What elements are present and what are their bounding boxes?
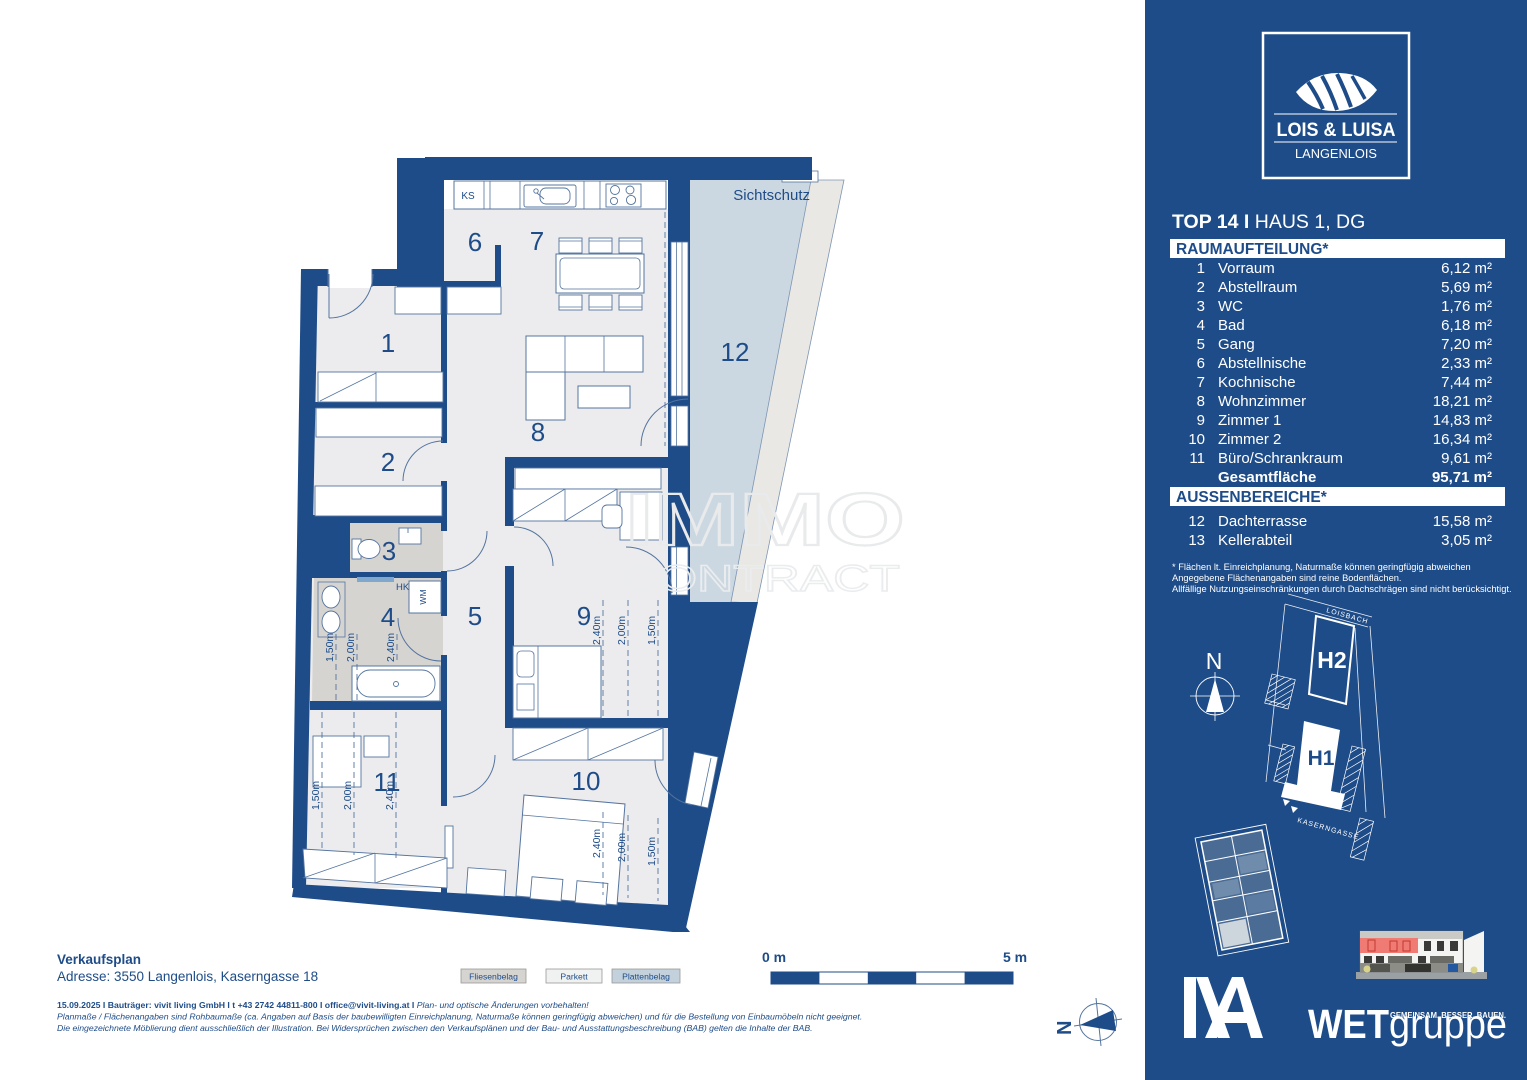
svg-text:KS: KS [461, 191, 475, 202]
svg-text:6,12 m²: 6,12 m² [1441, 260, 1492, 277]
svg-text:1: 1 [381, 328, 395, 358]
svg-text:Wohnzimmer: Wohnzimmer [1218, 393, 1306, 410]
svg-text:15.09.2025 I Bauträger: vivit: 15.09.2025 I Bauträger: vivit living Gmb… [57, 1000, 589, 1010]
svg-text:14,83 m²: 14,83 m² [1433, 412, 1492, 429]
svg-text:1,50m: 1,50m [310, 781, 322, 810]
svg-text:10: 10 [572, 766, 601, 796]
svg-text:2,00m: 2,00m [616, 833, 628, 862]
svg-text:gruppe: gruppe [1389, 1001, 1507, 1047]
svg-text:5,69 m²: 5,69 m² [1441, 279, 1492, 296]
svg-text:9,61 m²: 9,61 m² [1441, 450, 1492, 467]
svg-text:LANGENLOIS: LANGENLOIS [1295, 146, 1377, 161]
svg-text:Zimmer 2: Zimmer 2 [1218, 431, 1281, 448]
svg-text:12: 12 [721, 337, 750, 367]
svg-text:10: 10 [1188, 431, 1205, 448]
svg-text:Gang: Gang [1218, 336, 1255, 353]
svg-text:AUSSENBEREICHE*: AUSSENBEREICHE* [1176, 489, 1328, 506]
svg-text:4: 4 [381, 602, 395, 632]
svg-text:95,71 m²: 95,71 m² [1432, 469, 1492, 486]
svg-text:WC: WC [1218, 298, 1243, 315]
svg-text:N: N [1054, 1021, 1076, 1035]
svg-text:Angegebene Flächenangaben sind: Angegebene Flächenangaben sind reine Bod… [1172, 573, 1402, 583]
svg-text:* Flächen lt. Einreichplanung,: * Flächen lt. Einreichplanung, Naturmaße… [1172, 562, 1471, 572]
svg-text:13: 13 [1188, 532, 1205, 549]
svg-text:2: 2 [1197, 279, 1205, 296]
svg-text:3: 3 [1197, 298, 1205, 315]
svg-text:Vorraum: Vorraum [1218, 260, 1275, 277]
svg-text:11: 11 [1189, 450, 1205, 467]
svg-text:1,50m: 1,50m [646, 616, 658, 645]
svg-text:7,20 m²: 7,20 m² [1441, 336, 1492, 353]
svg-text:5: 5 [1197, 336, 1205, 353]
svg-text:5: 5 [468, 601, 482, 631]
svg-text:5 m: 5 m [1003, 949, 1027, 965]
svg-text:9: 9 [577, 601, 591, 631]
svg-text:Abstellraum: Abstellraum [1218, 279, 1297, 296]
svg-text:2,33 m²: 2,33 m² [1441, 355, 1492, 372]
svg-text:Allfällige Nutzungseinschränku: Allfällige Nutzungseinschränkungen durch… [1172, 584, 1512, 594]
svg-text:GEMEINSAM. BESSER. BAUEN.: GEMEINSAM. BESSER. BAUEN. [1390, 1010, 1506, 1020]
svg-text:IMMO: IMMO [625, 478, 905, 561]
svg-text:Bad: Bad [1218, 317, 1245, 334]
svg-text:WET: WET [1308, 1001, 1389, 1047]
svg-text:Zimmer 1: Zimmer 1 [1218, 412, 1281, 429]
svg-text:CONTRACT: CONTRACT [622, 558, 900, 599]
svg-text:Die eingezeichnete Möblierung: Die eingezeichnete Möblierung dient auss… [57, 1023, 813, 1033]
svg-text:15,58 m²: 15,58 m² [1433, 513, 1492, 530]
svg-text:RAUMAUFTEILUNG*: RAUMAUFTEILUNG* [1176, 241, 1329, 258]
svg-text:2,00m: 2,00m [345, 633, 357, 662]
svg-text:Kellerabteil: Kellerabteil [1218, 532, 1292, 549]
svg-text:Dachterrasse: Dachterrasse [1218, 513, 1307, 530]
svg-text:12: 12 [1188, 513, 1205, 530]
svg-text:H1: H1 [1308, 747, 1335, 770]
svg-text:6: 6 [468, 227, 482, 257]
svg-text:N: N [1206, 648, 1223, 674]
svg-text:2,40m: 2,40m [385, 633, 397, 662]
svg-text:Planmaße / Flächenangaben sind: Planmaße / Flächenangaben sind Rohbaumaß… [57, 1012, 862, 1022]
svg-text:H2: H2 [1317, 647, 1346, 673]
svg-text:Adresse: 3550 Langenlois, Kase: Adresse: 3550 Langenlois, Kaserngasse 18 [57, 969, 318, 984]
svg-text:8: 8 [1197, 393, 1205, 410]
svg-text:3,05 m²: 3,05 m² [1441, 532, 1492, 549]
svg-text:Büro/Schrankraum: Büro/Schrankraum [1218, 450, 1343, 467]
svg-text:7,44 m²: 7,44 m² [1441, 374, 1492, 391]
svg-text:1: 1 [1197, 260, 1205, 277]
svg-text:WM: WM [418, 589, 428, 604]
svg-text:HK: HK [396, 582, 410, 593]
svg-text:Kochnische: Kochnische [1218, 374, 1296, 391]
svg-text:2,40m: 2,40m [591, 616, 603, 645]
svg-text:1,76 m²: 1,76 m² [1441, 298, 1492, 315]
svg-text:2,40m: 2,40m [591, 829, 603, 858]
svg-text:Fliesenbelag: Fliesenbelag [469, 972, 518, 982]
svg-text:11: 11 [374, 767, 401, 797]
svg-text:Gesamtfläche: Gesamtfläche [1218, 469, 1316, 486]
svg-text:TOP 14 I HAUS 1, DG: TOP 14 I HAUS 1, DG [1172, 211, 1365, 233]
svg-text:8: 8 [531, 417, 545, 447]
svg-text:16,34 m²: 16,34 m² [1433, 431, 1492, 448]
svg-text:3: 3 [382, 536, 396, 566]
svg-text:2,00m: 2,00m [616, 616, 628, 645]
svg-text:Sichtschutz: Sichtschutz [733, 187, 810, 204]
svg-text:6: 6 [1197, 355, 1205, 372]
svg-text:18,21 m²: 18,21 m² [1433, 393, 1492, 410]
svg-text:Abstellnische: Abstellnische [1218, 355, 1306, 372]
svg-text:9: 9 [1197, 412, 1205, 429]
svg-text:Plattenbelag: Plattenbelag [622, 972, 670, 982]
svg-text:0 m: 0 m [762, 949, 786, 965]
svg-text:4: 4 [1197, 317, 1205, 334]
svg-text:7: 7 [530, 226, 544, 256]
svg-text:1,50m: 1,50m [324, 633, 336, 662]
svg-text:6,18 m²: 6,18 m² [1441, 317, 1492, 334]
svg-text:Verkaufsplan: Verkaufsplan [57, 952, 141, 967]
svg-text:1,50m: 1,50m [646, 837, 658, 866]
svg-text:2,00m: 2,00m [342, 781, 354, 810]
svg-text:2: 2 [381, 447, 395, 477]
svg-text:Parkett: Parkett [560, 972, 588, 982]
svg-text:LOIS & LUISA: LOIS & LUISA [1277, 119, 1396, 141]
svg-text:7: 7 [1197, 374, 1205, 391]
